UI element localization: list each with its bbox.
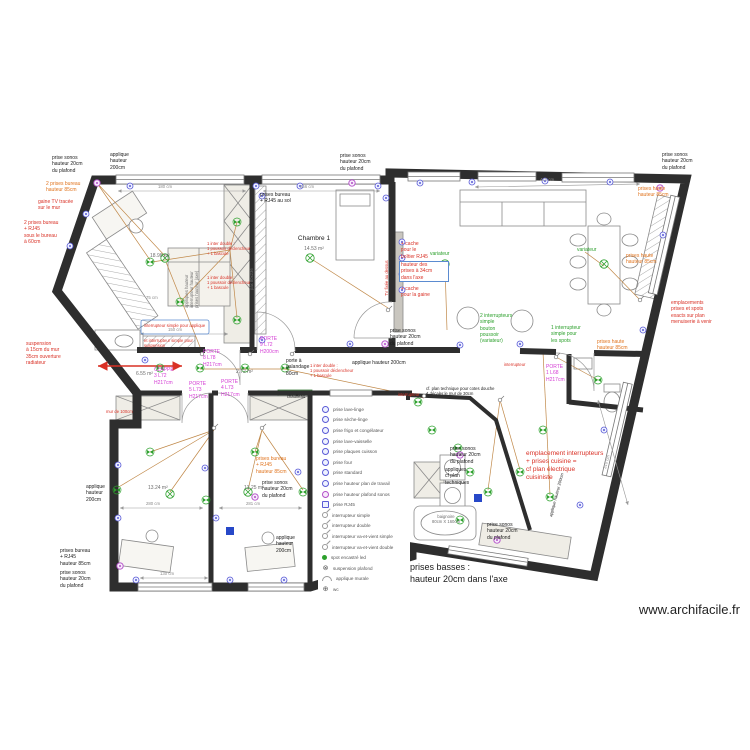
note-variateur: variateur: [430, 251, 470, 257]
legend-item: prise lave-linge: [322, 404, 410, 415]
note-hauteur-prises-34: hauteur des prises à 34cm dans l'axe: [399, 261, 449, 282]
legend-item: interrupteur double: [322, 521, 410, 532]
door-label-porte5: PORTE 5 L73 H217cm: [189, 381, 221, 400]
dim-label: 410 cm: [540, 177, 554, 182]
note-prises-haute: prises haute hauteur 85cm: [597, 339, 647, 352]
socket-icon: [322, 416, 329, 423]
legend-item: interrupteur va-et-vient double: [322, 542, 410, 553]
legend-item: prise four: [322, 457, 410, 468]
legend-item: spot encastré led: [322, 552, 410, 563]
socket-icon: [322, 480, 329, 487]
legend-label: prise lave-vaisselle: [333, 439, 372, 444]
socket-icon: [322, 459, 329, 466]
door-label-porte9: PORTE 9 L72 H200cm: [260, 336, 292, 355]
note-chauffe-eau: chauffeau: [279, 394, 313, 399]
legend-label: spot encastré led: [331, 555, 366, 560]
legend-label: wc: [333, 587, 339, 592]
legend-item: prise hauteur plan de travail: [322, 478, 410, 489]
switch-icon: [322, 544, 328, 550]
legend-item: suspension plafond: [322, 563, 410, 574]
note-suspension-radiateur: suspension à 15cm du mur 35cm ouverture …: [26, 341, 84, 366]
dim-label: 256 cm: [300, 184, 314, 189]
note-plan-technique: cf. plan technique pour cotes douche + d…: [426, 386, 522, 396]
legend-label: prise sèche-linge: [333, 417, 368, 422]
legend-label: suspension plafond: [333, 566, 373, 571]
wall-light-icon: [322, 576, 332, 581]
sonos-socket-icon: [322, 491, 329, 498]
legend-item: prise hauteur plafond sonos: [322, 489, 410, 500]
note-prises-haute: prises haute hauteur 85cm: [638, 186, 688, 199]
note-appliques-plan: appliques cf plan techniques: [445, 467, 485, 486]
note-applique: applique hauteur 200cm: [276, 535, 310, 554]
legend-label: prise four: [333, 460, 352, 465]
switch-icon: [322, 512, 328, 518]
note-cuisine-vertical: appliques hauteur interrupteur hauteur p…: [184, 244, 199, 308]
legend-label: prise plaques cuisson: [333, 449, 377, 454]
dim-label: 180 cm: [158, 184, 172, 189]
legend-label: applique murale: [336, 576, 369, 581]
door-label-porte4: PORTE 4 L73 H217cm: [221, 379, 253, 398]
rj45-icon: [322, 501, 329, 508]
legend-item: interrupteur simple: [322, 510, 410, 521]
note-prises-bureau-sol: prises bureau + RJ45 au sol: [260, 192, 316, 205]
note-emplacement-cuisine: emplacement interrupteurs + prises cuisi…: [526, 450, 636, 483]
room-area-chambre2: 13.24 m²: [148, 485, 182, 491]
note-1-interrupteur-spots: 1 interrupteur simple pour les spots: [551, 325, 601, 344]
note-applique: applique hauteur 200cm: [110, 152, 144, 171]
switch-icon: [322, 523, 328, 529]
note-prise-sonos: prise sonos hauteur 20cm du plafond: [662, 152, 708, 171]
legend-item: prise plaques cuisson: [322, 446, 410, 457]
note-prises-basses: prises basses : hauteur 20cm dans l'axe: [410, 562, 550, 585]
socket-icon: [322, 427, 329, 434]
note-cache-gaine: + cache pour la gaine: [401, 286, 447, 299]
legend-label: interrupteur va-et-vient double: [332, 545, 393, 550]
note-variateur: variateur: [577, 247, 617, 253]
legend-label: interrupteur va-et-vient simple: [332, 534, 393, 539]
legend-label: interrupteur simple: [332, 513, 370, 518]
legend-label: prise RJ45: [333, 502, 355, 507]
dim-label: 281 cm: [246, 501, 260, 506]
note-tv-fixee: TV fixée au dessus: [384, 238, 389, 296]
floor-plan-page: prise lave-linge prise sèche-linge prise…: [0, 0, 750, 750]
dim-label: 280 cm: [146, 501, 160, 506]
legend-label: interrupteur double: [332, 523, 371, 528]
note-prise-sonos: prise sonos hauteur 20cm du plafond: [487, 522, 533, 541]
socket-icon: [322, 406, 329, 413]
legend-item: prise standard: [322, 468, 410, 479]
note-prises-bureau-rj45-85: prises bureau + RJ45 hauteur 85cm: [256, 456, 308, 475]
ceiling-light-icon: [322, 565, 329, 572]
legend-item: applique murale: [322, 574, 410, 585]
legend-label: prise hauteur plafond sonos: [333, 492, 390, 497]
legend-item: prise frigo et congélateur: [322, 425, 410, 436]
legend-item: wc: [322, 584, 410, 595]
room-area-couloir: 2.72 m²: [236, 369, 266, 375]
switch-icon: [322, 533, 328, 539]
note-emplacements-menuiserie: emplacements prises et spots exacts sur …: [671, 300, 743, 325]
socket-icon: [322, 438, 329, 445]
legend-label: prise frigo et congélateur: [333, 428, 384, 433]
note-mur-100: mur de 100cm: [106, 409, 156, 414]
legend-label: prise lave-linge: [333, 407, 364, 412]
legend: prise lave-linge prise sèche-linge prise…: [318, 400, 410, 596]
note-pax: pax 80x236: [249, 244, 254, 290]
wc-icon: [322, 586, 329, 593]
room-name-chambre1: Chambre 1: [282, 235, 346, 243]
note-prise-sonos: prise sonos hauteur 20cm du plafond: [340, 153, 386, 172]
note-inter-double: 1 inter double : 1 poussoir déclencheur …: [207, 275, 279, 290]
room-area-chambre1: 14.53 m²: [282, 246, 346, 252]
socket-icon: [322, 448, 329, 455]
door-label-porte8: PORTE 8 L78 H217cm: [203, 349, 235, 368]
door-label-porte1: PORTE 1 L68 H217cm: [546, 364, 578, 383]
legend-label: prise hauteur plan de travail: [333, 481, 390, 486]
watermark: www.archifacile.fr: [595, 602, 740, 618]
door-label-clappe3: CLAPPE 3 L72 H217cm: [154, 367, 186, 386]
note-prise-sonos: prise sonos hauteur 20cm du plafond: [60, 570, 106, 589]
note-prises-bureau-rj45: 2 prises bureau + RJ45 sous le bureau à …: [24, 220, 82, 245]
led-spot-icon: [322, 555, 327, 560]
socket-icon: [322, 469, 329, 476]
note-inter-double: 1 inter double : 1 poussoir déclencheur …: [310, 363, 382, 378]
legend-item: prise lave-vaisselle: [322, 436, 410, 447]
note-gaine-tv: gaine TV tracée sur le mur: [38, 199, 96, 212]
note-inter-suspension: et interrupteur simple pour suspension: [144, 338, 206, 348]
legend-item: prise RJ45: [322, 499, 410, 510]
dim-label: 130 cm: [160, 571, 174, 576]
dim-label: 75 cm: [146, 295, 158, 300]
legend-item: interrupteur va-et-vient simple: [322, 531, 410, 542]
note-baignoire: baignoire 80cm X 160cm: [420, 514, 472, 524]
dim-label: 150 cm: [168, 327, 182, 332]
note-applique: applique hauteur 200cm: [86, 484, 120, 503]
note-prise-sonos: prise sonos hauteur 20cm du plafond: [52, 155, 98, 174]
legend-label: prise standard: [333, 470, 362, 475]
note-2-interrupteurs: 2 interrupteurs simple bouton poussoir (…: [480, 313, 536, 344]
note-prise-sonos: prise sonos hauteur 20cm du plafond: [450, 446, 496, 465]
note-inter-double: 1 inter double : 1 poussoir déclencheur …: [207, 241, 279, 256]
note-prises-bureau-rj45-85: prises bureau + RJ45 hauteur 85cm: [60, 548, 112, 567]
note-prise-sonos: prise sonos hauteur 20cm du plafond: [390, 328, 436, 347]
note-prises-haute: prises haute hauteur 85cm: [626, 253, 676, 266]
note-prises-bureau-85: 2 prises bureau hauteur 85cm: [46, 181, 104, 194]
note-interrupteur: interrupteur: [504, 362, 540, 367]
room-area-chambre3: 13.25 m²: [244, 485, 278, 491]
legend-item: prise sèche-linge: [322, 415, 410, 426]
